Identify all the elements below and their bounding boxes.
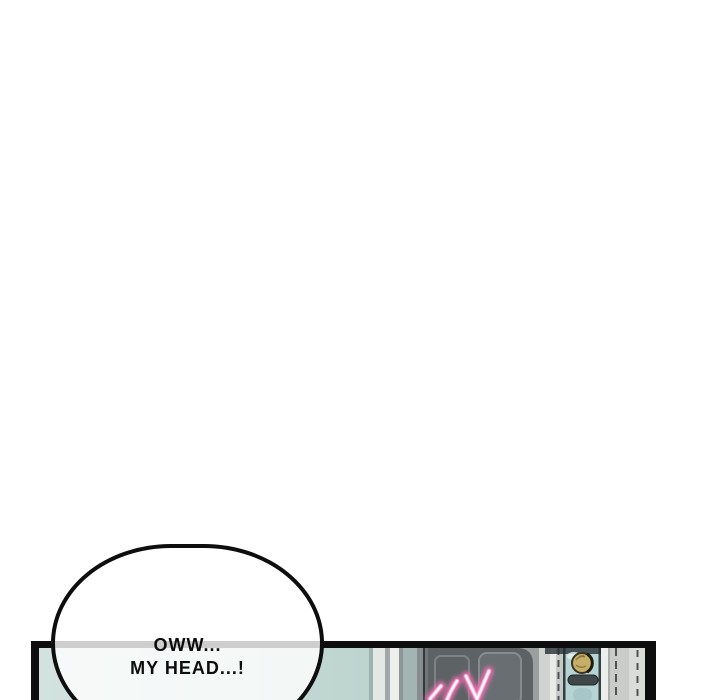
- frame-strip: [399, 648, 403, 700]
- jamb-strip: [539, 648, 550, 700]
- frame-strip: [390, 648, 399, 700]
- door-jamb: [533, 648, 563, 700]
- doorknob: [572, 653, 592, 673]
- mail-slot: [568, 675, 598, 685]
- frame-strip: [403, 648, 417, 700]
- plate-edge: [563, 648, 566, 700]
- speech-bubble: OWW... MY HEAD...!: [51, 544, 324, 700]
- jamb-strip: [550, 648, 556, 700]
- door-left-highlight: [425, 648, 428, 700]
- slot-shadow: [573, 688, 592, 700]
- frame-strip: [373, 648, 385, 700]
- wall-strip: [608, 648, 610, 700]
- speech-line: MY HEAD...!: [55, 657, 320, 680]
- door-frame: [369, 648, 425, 700]
- jamb-strip: [533, 648, 539, 700]
- comic-page: OWW... MY HEAD...!: [0, 0, 720, 700]
- speech-line: OWW...: [55, 634, 320, 657]
- frame-strip: [385, 648, 390, 700]
- frame-edge-line: [423, 648, 425, 700]
- speech-bubble-text: OWW... MY HEAD...!: [55, 634, 320, 680]
- frame-strip: [417, 648, 423, 700]
- wall-strip: [601, 648, 608, 700]
- right-wall: [601, 648, 645, 700]
- plate-edge: [599, 648, 602, 700]
- wall-strip: [610, 648, 629, 700]
- frame-strip: [369, 648, 373, 700]
